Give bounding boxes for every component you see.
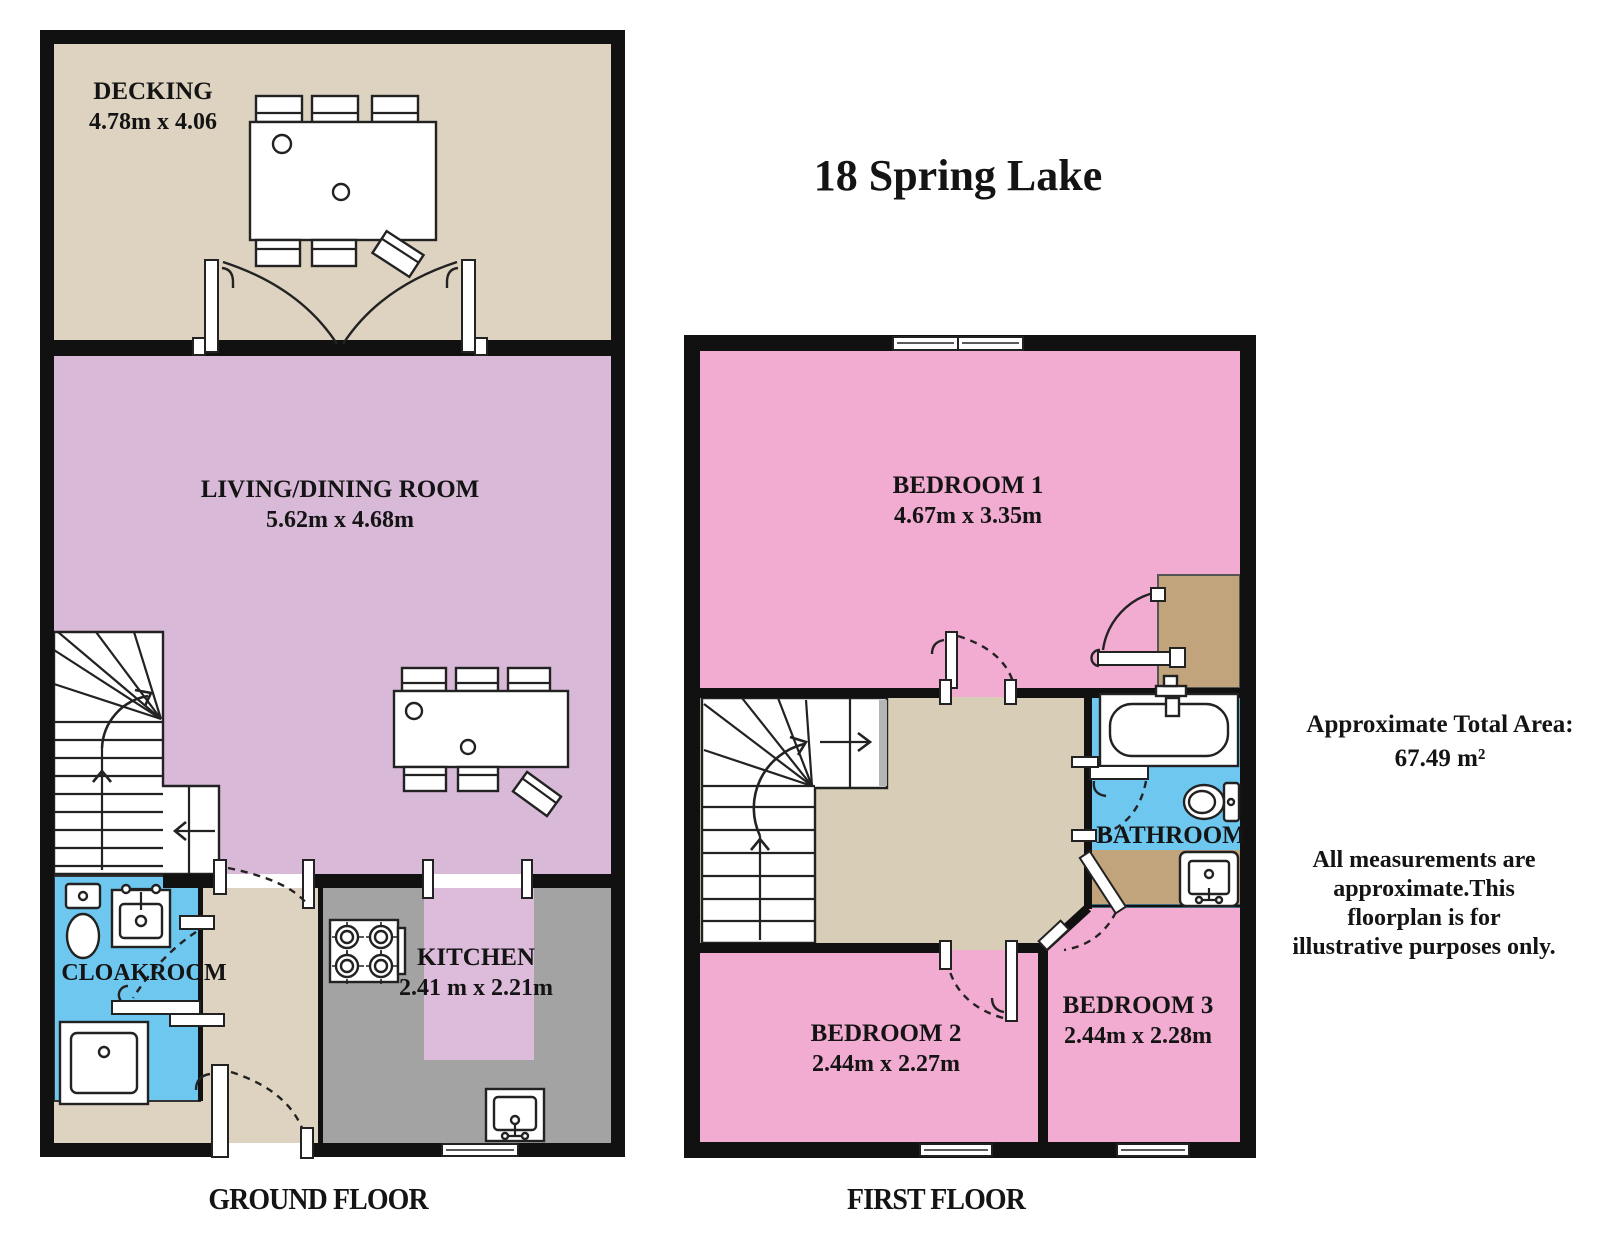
- decking-table-set: [250, 96, 436, 277]
- cloakroom-toilet: [66, 884, 100, 958]
- kitchen-label: KITCHEN 2.41 m x 2.21m: [399, 942, 553, 1004]
- decking-label: DECKING 4.78m x 4.06: [89, 76, 217, 138]
- wardrobe: [1158, 575, 1240, 688]
- bathroom-sink: [1180, 852, 1238, 906]
- chair: [312, 240, 356, 266]
- bedroom1-label: BEDROOM 1 4.67m x 3.35m: [893, 470, 1044, 532]
- room-dims: 4.78m x 4.06: [89, 107, 217, 138]
- room-dims: 2.44m x 2.28m: [1063, 1021, 1214, 1052]
- kitchen-hob: [330, 920, 405, 984]
- living-dining-label: LIVING/DINING ROOM 5.62m x 4.68m: [201, 474, 480, 536]
- chair: [256, 96, 302, 122]
- chair: [404, 767, 446, 791]
- disclaimer-line: approximate.This: [1292, 875, 1555, 904]
- floorplan-graphics: [0, 0, 1600, 1244]
- chair: [402, 668, 446, 691]
- room-name: DECKING: [89, 76, 217, 107]
- kitchen-window: [442, 1144, 518, 1156]
- first-floor-label: FIRST FLOOR: [847, 1182, 1025, 1216]
- room-dims: 4.67m x 3.35m: [893, 501, 1044, 532]
- chair: [508, 668, 550, 691]
- bedroom3-label: BEDROOM 3 2.44m x 2.28m: [1063, 990, 1214, 1052]
- cloakroom-label: CLOAKROOM: [61, 958, 226, 989]
- chair: [372, 96, 418, 122]
- room-name: LIVING/DINING ROOM: [201, 474, 480, 505]
- room-dims: 2.44m x 2.27m: [811, 1049, 962, 1080]
- chair: [458, 767, 498, 791]
- total-area-value: 67.49 m²: [1306, 742, 1573, 776]
- bathroom-label: BATHROOM: [1096, 820, 1246, 851]
- floorplan-canvas: 18 Spring Lake DECKING 4.78m x 4.06 LIVI…: [0, 0, 1600, 1244]
- chair: [456, 668, 498, 691]
- page-title: 18 Spring Lake: [814, 152, 1103, 200]
- room-name: BEDROOM 2: [811, 1018, 962, 1049]
- room-name: BEDROOM 1: [893, 470, 1044, 501]
- ground-floor-label: GROUND FLOOR: [208, 1182, 427, 1216]
- room-name: BEDROOM 3: [1063, 990, 1214, 1021]
- disclaimer-note: All measurements are approximate.This fl…: [1292, 846, 1555, 962]
- cloakroom-shower: [60, 1022, 148, 1104]
- dining-table: [394, 691, 568, 767]
- chair: [256, 240, 300, 266]
- room-dims: 5.62m x 4.68m: [201, 505, 480, 536]
- bedroom2-label: BEDROOM 2 2.44m x 2.27m: [811, 1018, 962, 1080]
- disclaimer-line: All measurements are: [1292, 846, 1555, 875]
- total-area-note: Approximate Total Area: 67.49 m²: [1306, 708, 1573, 776]
- room-name: KITCHEN: [399, 942, 553, 973]
- total-area-label: Approximate Total Area:: [1306, 708, 1573, 742]
- toilet: [1184, 783, 1239, 821]
- cloakroom-sink: [112, 885, 170, 947]
- disclaimer-line: floorplan is for: [1292, 904, 1555, 933]
- kitchen-sink: [486, 1089, 544, 1141]
- disclaimer-line: illustrative purposes only.: [1292, 933, 1555, 962]
- chair: [312, 96, 358, 122]
- room-dims: 2.41 m x 2.21m: [399, 973, 553, 1004]
